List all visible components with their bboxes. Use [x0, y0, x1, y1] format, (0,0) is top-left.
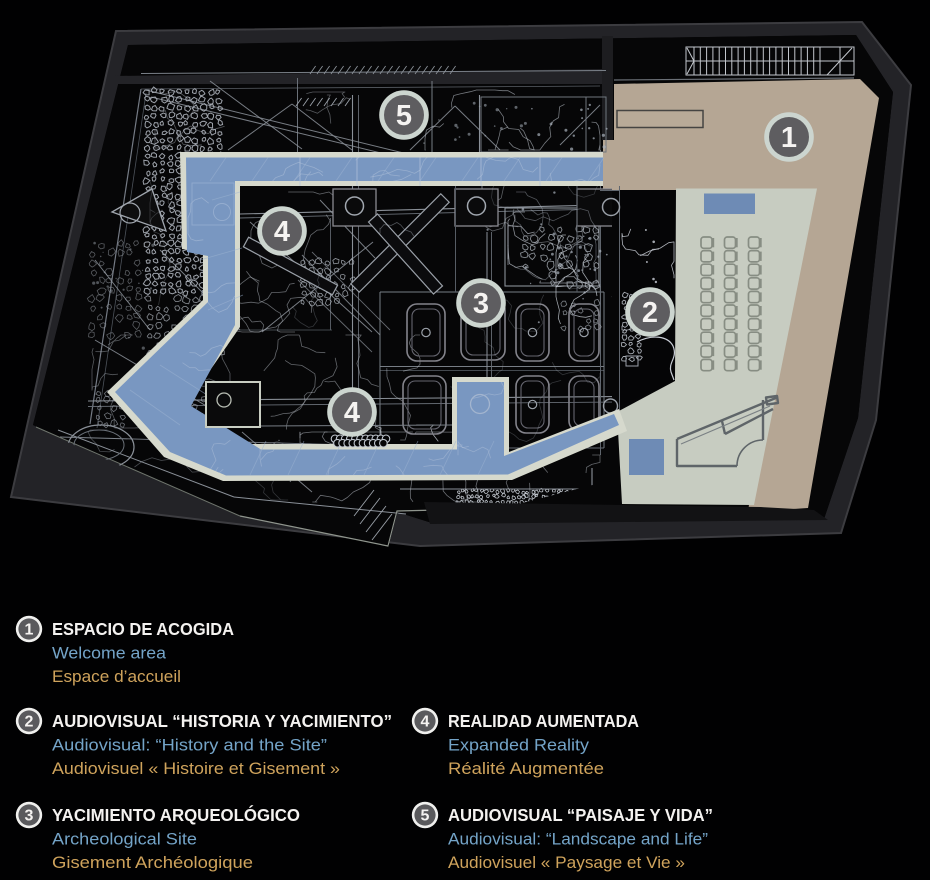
svg-text:AUDIOVISUAL “PAISAJE Y VIDA”: AUDIOVISUAL “PAISAJE Y VIDA”	[448, 805, 713, 825]
svg-text:4: 4	[421, 714, 430, 731]
svg-text:3: 3	[25, 808, 34, 825]
svg-text:5: 5	[396, 100, 412, 132]
svg-text:Audiovisual: “Landscape and Li: Audiovisual: “Landscape and Life”	[448, 830, 708, 849]
svg-text:Expanded Reality: Expanded Reality	[448, 736, 590, 755]
svg-text:2: 2	[642, 297, 658, 329]
svg-text:Audiovisual: “History and the: Audiovisual: “History and the Site”	[52, 736, 327, 755]
svg-text:1: 1	[781, 122, 797, 154]
svg-text:YACIMIENTO ARQUEOLÓGICO: YACIMIENTO ARQUEOLÓGICO	[52, 804, 300, 825]
svg-text:ESPACIO DE ACOGIDA: ESPACIO DE ACOGIDA	[52, 619, 234, 639]
svg-text:Réalité Augmentée: Réalité Augmentée	[448, 759, 604, 778]
svg-text:REALIDAD AUMENTADA: REALIDAD AUMENTADA	[448, 711, 639, 731]
svg-text:Gisement Archéologique: Gisement Archéologique	[52, 853, 253, 872]
svg-text:Espace d’accueil: Espace d’accueil	[52, 667, 181, 686]
svg-text:Archeological Site: Archeological Site	[52, 830, 197, 849]
svg-text:Audiovisuel « Histoire et Gise: Audiovisuel « Histoire et Gisement »	[52, 759, 340, 778]
svg-text:AUDIOVISUAL “HISTORIA Y YACIMI: AUDIOVISUAL “HISTORIA Y YACIMIENTO”	[52, 711, 392, 731]
svg-text:4: 4	[274, 216, 290, 248]
svg-text:4: 4	[344, 397, 360, 429]
svg-text:2: 2	[25, 714, 34, 731]
svg-text:3: 3	[473, 288, 489, 320]
svg-text:5: 5	[421, 808, 430, 825]
svg-text:Welcome area: Welcome area	[52, 644, 167, 663]
svg-text:Audiovisuel « Paysage et Vie »: Audiovisuel « Paysage et Vie »	[448, 853, 685, 872]
svg-text:1: 1	[25, 622, 34, 639]
